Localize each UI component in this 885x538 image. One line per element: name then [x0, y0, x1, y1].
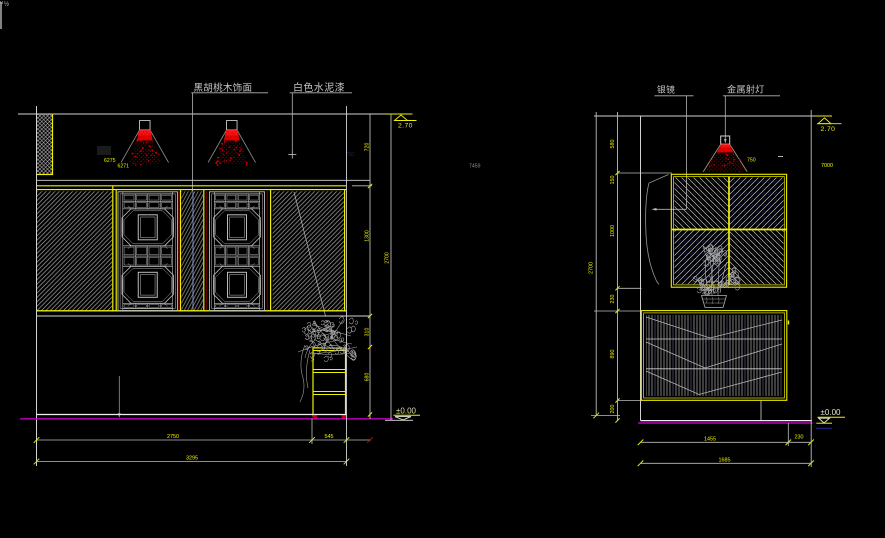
- svg-text:230: 230: [610, 295, 616, 304]
- svg-text:230: 230: [795, 435, 804, 441]
- svg-text:2.70: 2.70: [821, 126, 836, 133]
- svg-text:890: 890: [610, 350, 616, 359]
- svg-text:2.70: 2.70: [398, 123, 413, 130]
- svg-text:银镜: 银镜: [657, 84, 675, 95]
- svg-text:545: 545: [325, 434, 334, 440]
- svg-text:6271: 6271: [118, 164, 130, 170]
- svg-text:2700: 2700: [385, 252, 391, 264]
- svg-text:2700: 2700: [589, 262, 595, 274]
- svg-text:±0.00: ±0.00: [821, 408, 842, 417]
- svg-text:1000: 1000: [610, 225, 616, 237]
- svg-text:白色水泥漆: 白色水泥漆: [293, 81, 345, 94]
- svg-text:½: ½: [4, 1, 9, 8]
- svg-text:7000: 7000: [821, 163, 833, 169]
- svg-text:680: 680: [365, 373, 371, 382]
- svg-text:7459: 7459: [469, 164, 481, 170]
- svg-text:750: 750: [747, 158, 756, 164]
- svg-text:金属射灯: 金属射灯: [727, 84, 765, 95]
- svg-text:2750: 2750: [167, 434, 179, 440]
- svg-text:720: 720: [365, 143, 371, 152]
- svg-text:U: U: [0, 0, 3, 5]
- svg-text:150: 150: [610, 176, 616, 185]
- svg-text:580: 580: [610, 140, 616, 149]
- svg-text:黑胡桃木饰面: 黑胡桃木饰面: [194, 82, 253, 94]
- svg-text:1455: 1455: [704, 436, 716, 442]
- svg-text:6275: 6275: [104, 158, 116, 164]
- svg-text:3295: 3295: [186, 456, 198, 462]
- svg-text:±0.00: ±0.00: [396, 407, 417, 416]
- svg-text:310: 310: [365, 328, 371, 337]
- svg-text:200: 200: [610, 405, 616, 414]
- svg-text:1300: 1300: [365, 230, 371, 242]
- svg-text:1685: 1685: [719, 457, 731, 463]
